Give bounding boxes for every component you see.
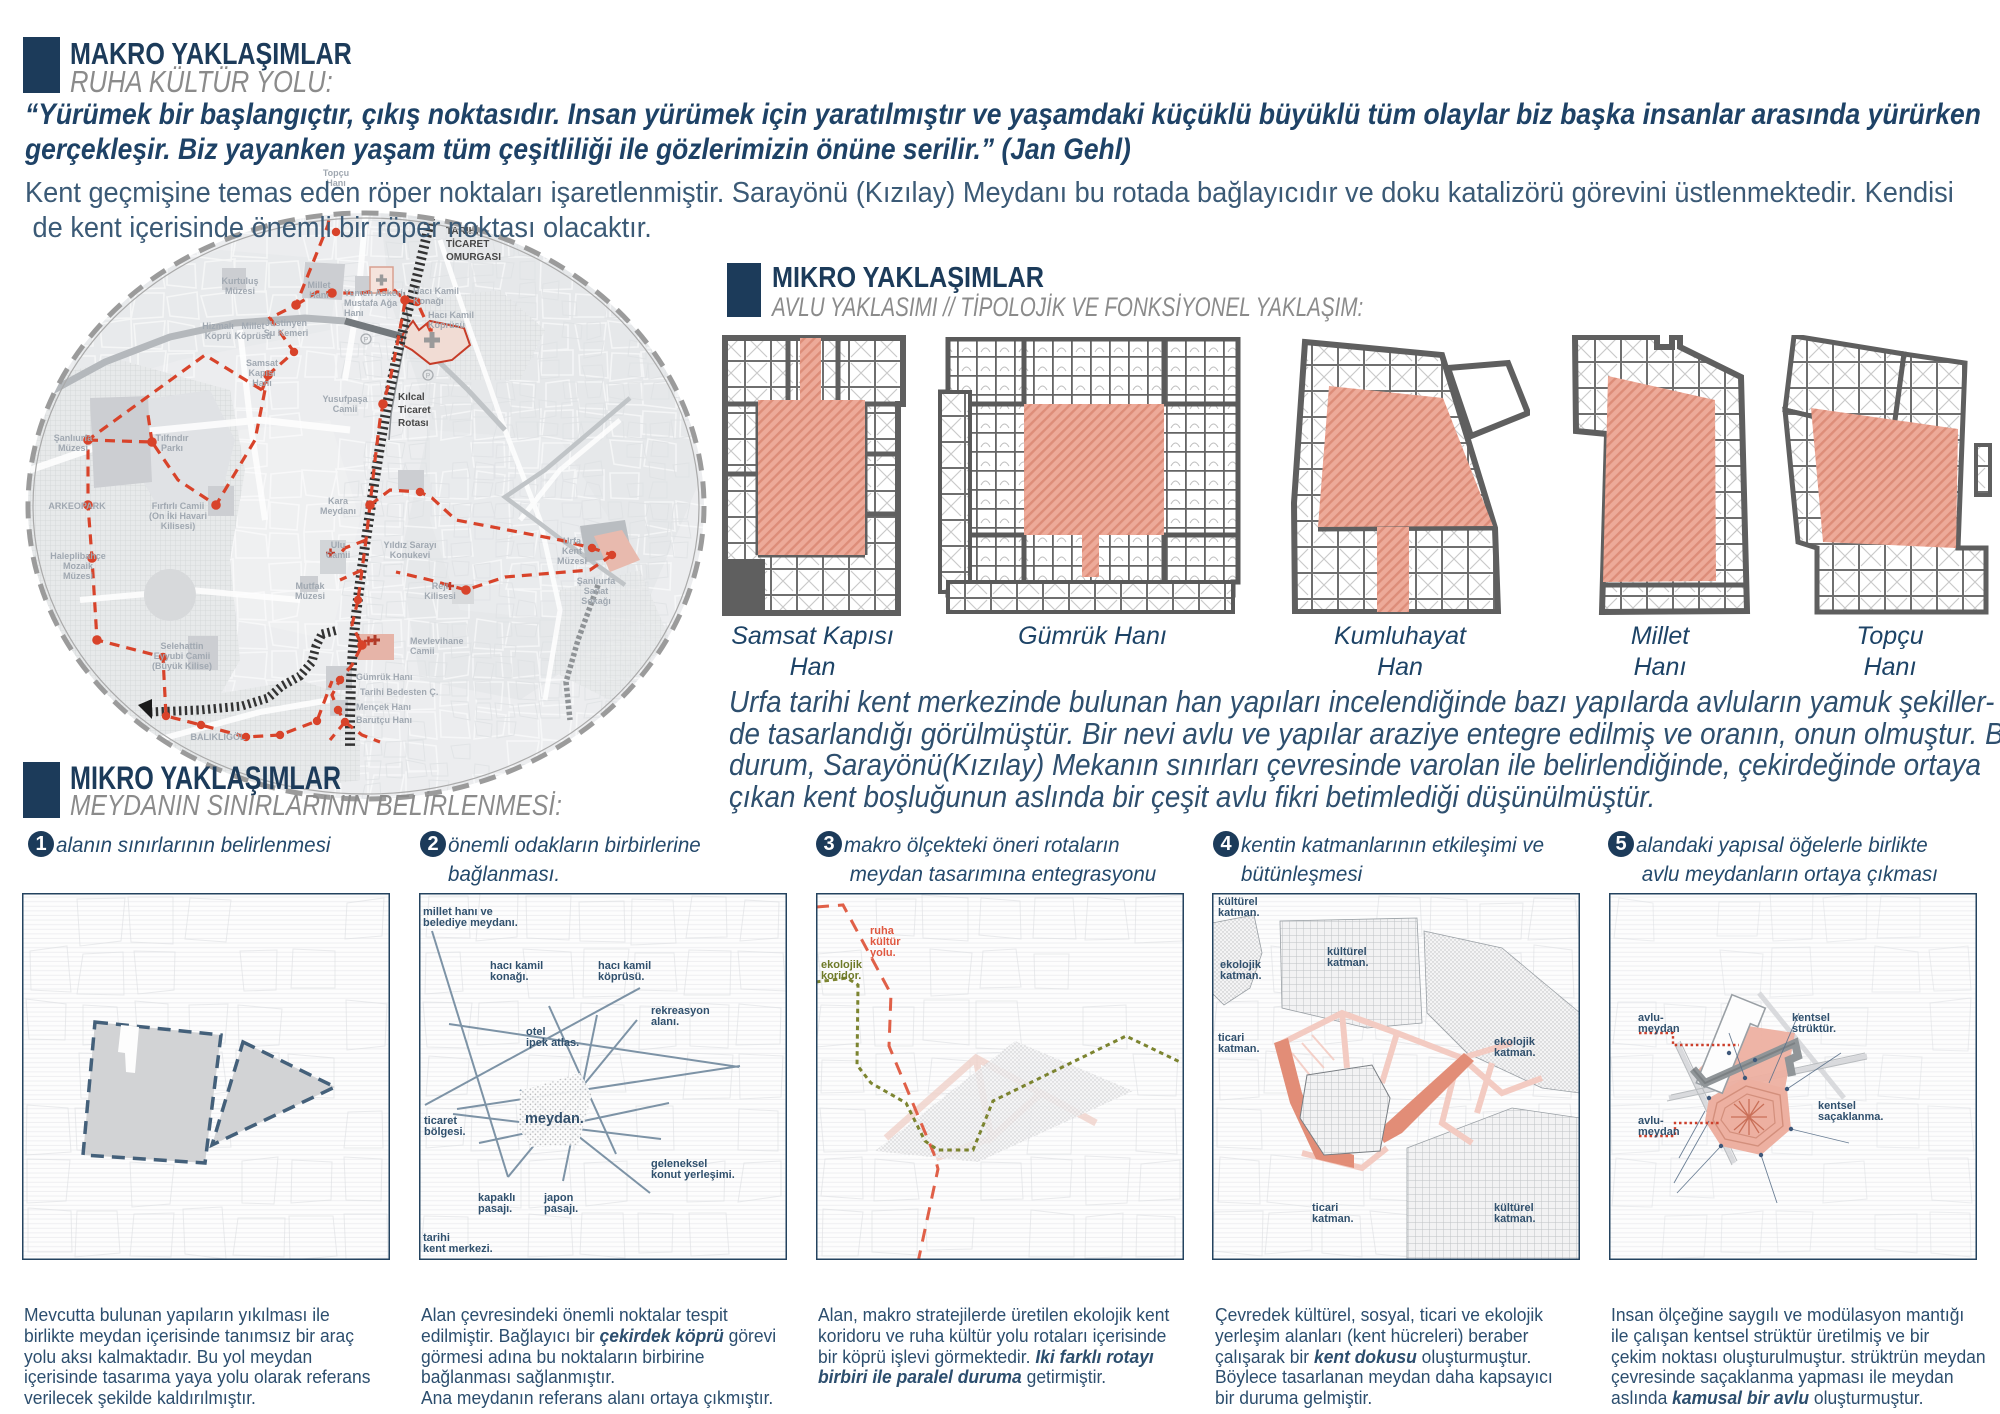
svg-text:Meydanı: Meydanı [320, 506, 356, 516]
svg-text:BALIKLIGÖL: BALIKLIGÖL [191, 732, 246, 742]
svg-text:Tarihi Bedesten Ç.: Tarihi Bedesten Ç. [360, 687, 438, 697]
svg-text:katman.: katman. [1494, 1213, 1536, 1225]
svg-text:konağı.: konağı. [490, 971, 529, 983]
svg-text:alanı.: alanı. [651, 1016, 679, 1028]
svg-text:Mozaik: Mozaik [63, 561, 94, 571]
svg-text:Camii: Camii [326, 550, 351, 560]
svg-text:pasajı.: pasajı. [478, 1203, 512, 1215]
svg-text:Hanı: Hanı [309, 290, 329, 300]
svg-text:Kilisesi: Kilisesi [424, 591, 456, 601]
svg-text:belediye meydanı.: belediye meydanı. [423, 917, 518, 929]
svg-text:Müzesi: Müzesi [58, 443, 88, 453]
svg-text:Gümrük Hanı: Gümrük Hanı [356, 672, 413, 682]
svg-text:meydan: meydan [1638, 1023, 1680, 1035]
svg-text:(Büyük Kilise): (Büyük Kilise) [152, 661, 212, 671]
svg-text:katman.: katman. [1312, 1213, 1354, 1225]
svg-text:pasajı.: pasajı. [544, 1203, 578, 1215]
svg-text:katman.: katman. [1218, 907, 1260, 919]
svg-text:katman.: katman. [1327, 957, 1369, 969]
svg-text:Reji: Reji [432, 581, 449, 591]
svg-text:Samsat: Samsat [246, 358, 278, 368]
svg-text:Sokağı: Sokağı [581, 596, 611, 606]
svg-text:ipek atlas.: ipek atlas. [526, 1037, 579, 1049]
svg-text:Camii: Camii [410, 646, 435, 656]
svg-text:Müzesi: Müzesi [295, 591, 325, 601]
svg-text:Ticaret: Ticaret [398, 405, 431, 416]
svg-text:OMURGASI: OMURGASI [446, 252, 501, 263]
svg-text:ARKEOPARK: ARKEOPARK [48, 501, 106, 511]
svg-text:Tılfındır: Tılfındır [156, 433, 189, 443]
svg-text:Kılcal: Kılcal [398, 392, 425, 403]
svg-text:yolu.: yolu. [870, 947, 896, 959]
svg-text:Kilisesi): Kilisesi) [161, 521, 196, 531]
svg-text:Kent: Kent [562, 546, 582, 556]
svg-text:Ulu: Ulu [331, 540, 346, 550]
svg-text:Millet: Millet [307, 280, 330, 290]
svg-text:koridor.: koridor. [821, 970, 861, 982]
svg-text:(On İki Havari: (On İki Havari [149, 511, 207, 521]
svg-text:Kapısı: Kapısı [248, 368, 275, 378]
svg-text:Millet: Millet [241, 321, 264, 331]
svg-text:Su Kemeri: Su Kemeri [264, 328, 309, 338]
svg-text:konut yerleşimi.: konut yerleşimi. [651, 1169, 735, 1181]
svg-text:Sanat: Sanat [584, 586, 609, 596]
svg-text:Köprüsü: Köprüsü [428, 320, 465, 330]
svg-text:katman.: katman. [1220, 970, 1262, 982]
svg-text:Parkı: Parkı [161, 443, 183, 453]
svg-text:katman.: katman. [1218, 1043, 1260, 1055]
svg-text:Mutfak: Mutfak [296, 581, 326, 591]
svg-text:Şanlıurfa: Şanlıurfa [577, 576, 617, 586]
svg-text:Şanlıurfa: Şanlıurfa [54, 433, 94, 443]
svg-text:Yusufpaşa: Yusufpaşa [322, 394, 368, 404]
svg-text:P: P [426, 373, 431, 380]
svg-text:Rotası: Rotası [398, 418, 429, 429]
svg-text:Hizmalı: Hizmalı [202, 321, 234, 331]
svg-text:Yemen Askeri: Yemen Askeri [344, 288, 403, 298]
svg-text:Müzesi: Müzesi [225, 286, 255, 296]
svg-text:köprüsü.: köprüsü. [598, 971, 644, 983]
svg-text:Fırfırlı Camii: Fırfırlı Camii [152, 501, 205, 511]
svg-text:bölgesi.: bölgesi. [424, 1126, 466, 1138]
svg-text:P: P [364, 337, 369, 344]
svg-text:Mustafa Ağa: Mustafa Ağa [344, 298, 398, 308]
svg-text:meydan: meydan [1638, 1126, 1680, 1138]
svg-text:Hacı Kamil: Hacı Kamil [428, 310, 474, 320]
svg-text:Konukevi: Konukevi [390, 550, 431, 560]
svg-text:meydan.: meydan. [525, 1111, 584, 1127]
svg-text:Konağı: Konağı [413, 296, 444, 306]
svg-text:Kara: Kara [328, 496, 349, 506]
svg-text:Selehattin: Selehattin [160, 641, 203, 651]
svg-text:Kurtuluş: Kurtuluş [222, 276, 259, 286]
svg-text:Barutçu Hanı: Barutçu Hanı [356, 715, 412, 725]
svg-text:Hacı Kamil: Hacı Kamil [413, 286, 459, 296]
svg-text:Haleplibahçe: Haleplibahçe [50, 551, 106, 561]
svg-text:Müzesi: Müzesi [63, 571, 93, 581]
svg-text:Müzesi: Müzesi [557, 556, 587, 566]
svg-text:Justinyen: Justinyen [265, 318, 307, 328]
svg-text:saçaklanma.: saçaklanma. [1818, 1111, 1883, 1123]
svg-text:katman.: katman. [1494, 1047, 1536, 1059]
svg-text:Köprü: Köprü [205, 331, 232, 341]
svg-text:strüktür.: strüktür. [1792, 1023, 1836, 1035]
svg-text:Camii: Camii [333, 404, 358, 414]
svg-text:Urfa: Urfa [563, 536, 582, 546]
svg-text:kent merkezi.: kent merkezi. [423, 1243, 493, 1255]
svg-text:Yıldız Sarayı: Yıldız Sarayı [383, 540, 436, 550]
svg-text:Mevlevihane: Mevlevihane [410, 636, 464, 646]
svg-text:Mençek Hanı: Mençek Hanı [356, 702, 411, 712]
svg-text:Eyyubi Camii: Eyyubi Camii [154, 651, 211, 661]
svg-text:Hanı: Hanı [252, 378, 272, 388]
svg-text:Hanı: Hanı [344, 308, 364, 318]
